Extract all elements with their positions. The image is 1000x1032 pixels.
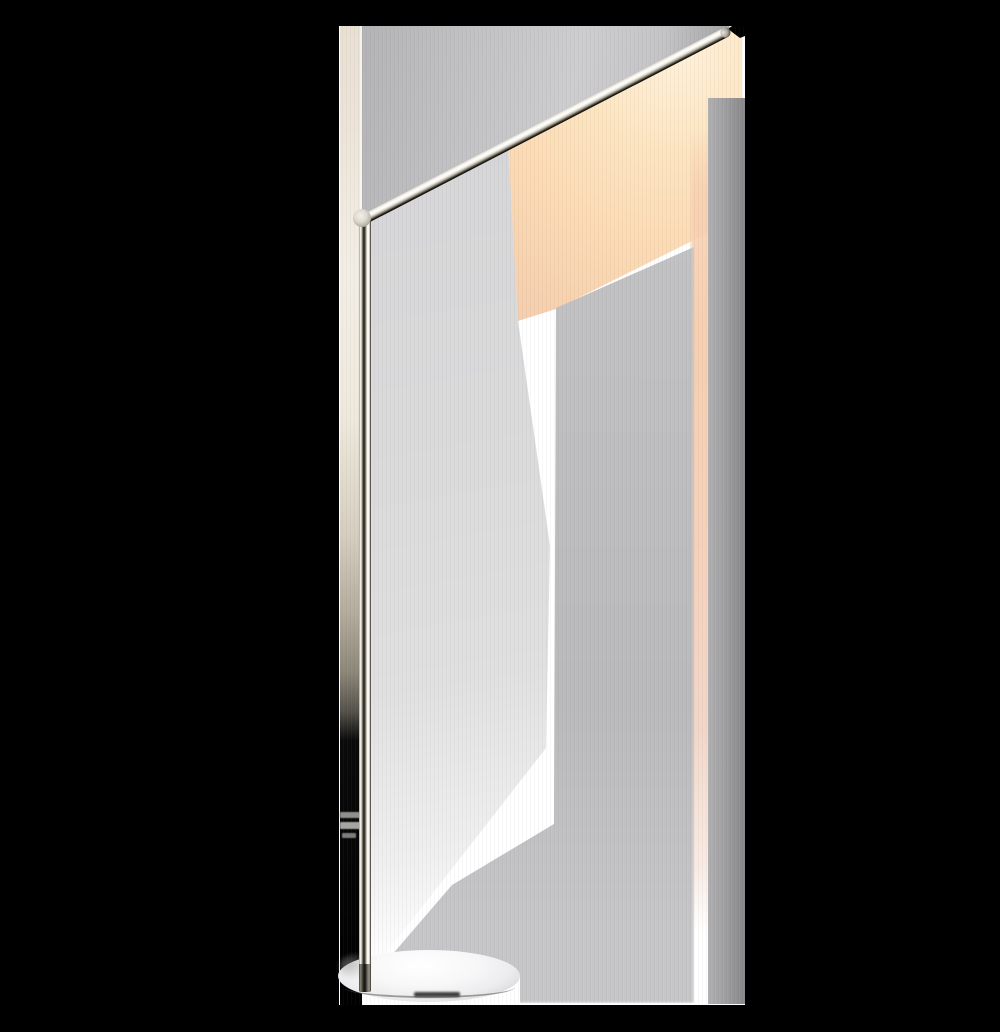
lamp-elbow-joint — [353, 209, 371, 227]
product-photo — [40, 16, 1000, 1016]
base-bottom-smudge — [414, 992, 460, 997]
lamp-pole-foot — [359, 964, 371, 992]
photo-artifact — [340, 812, 360, 818]
lamp-pole — [359, 216, 371, 966]
photo-artifact — [342, 833, 356, 838]
photo-grain-overlay — [339, 26, 745, 1005]
